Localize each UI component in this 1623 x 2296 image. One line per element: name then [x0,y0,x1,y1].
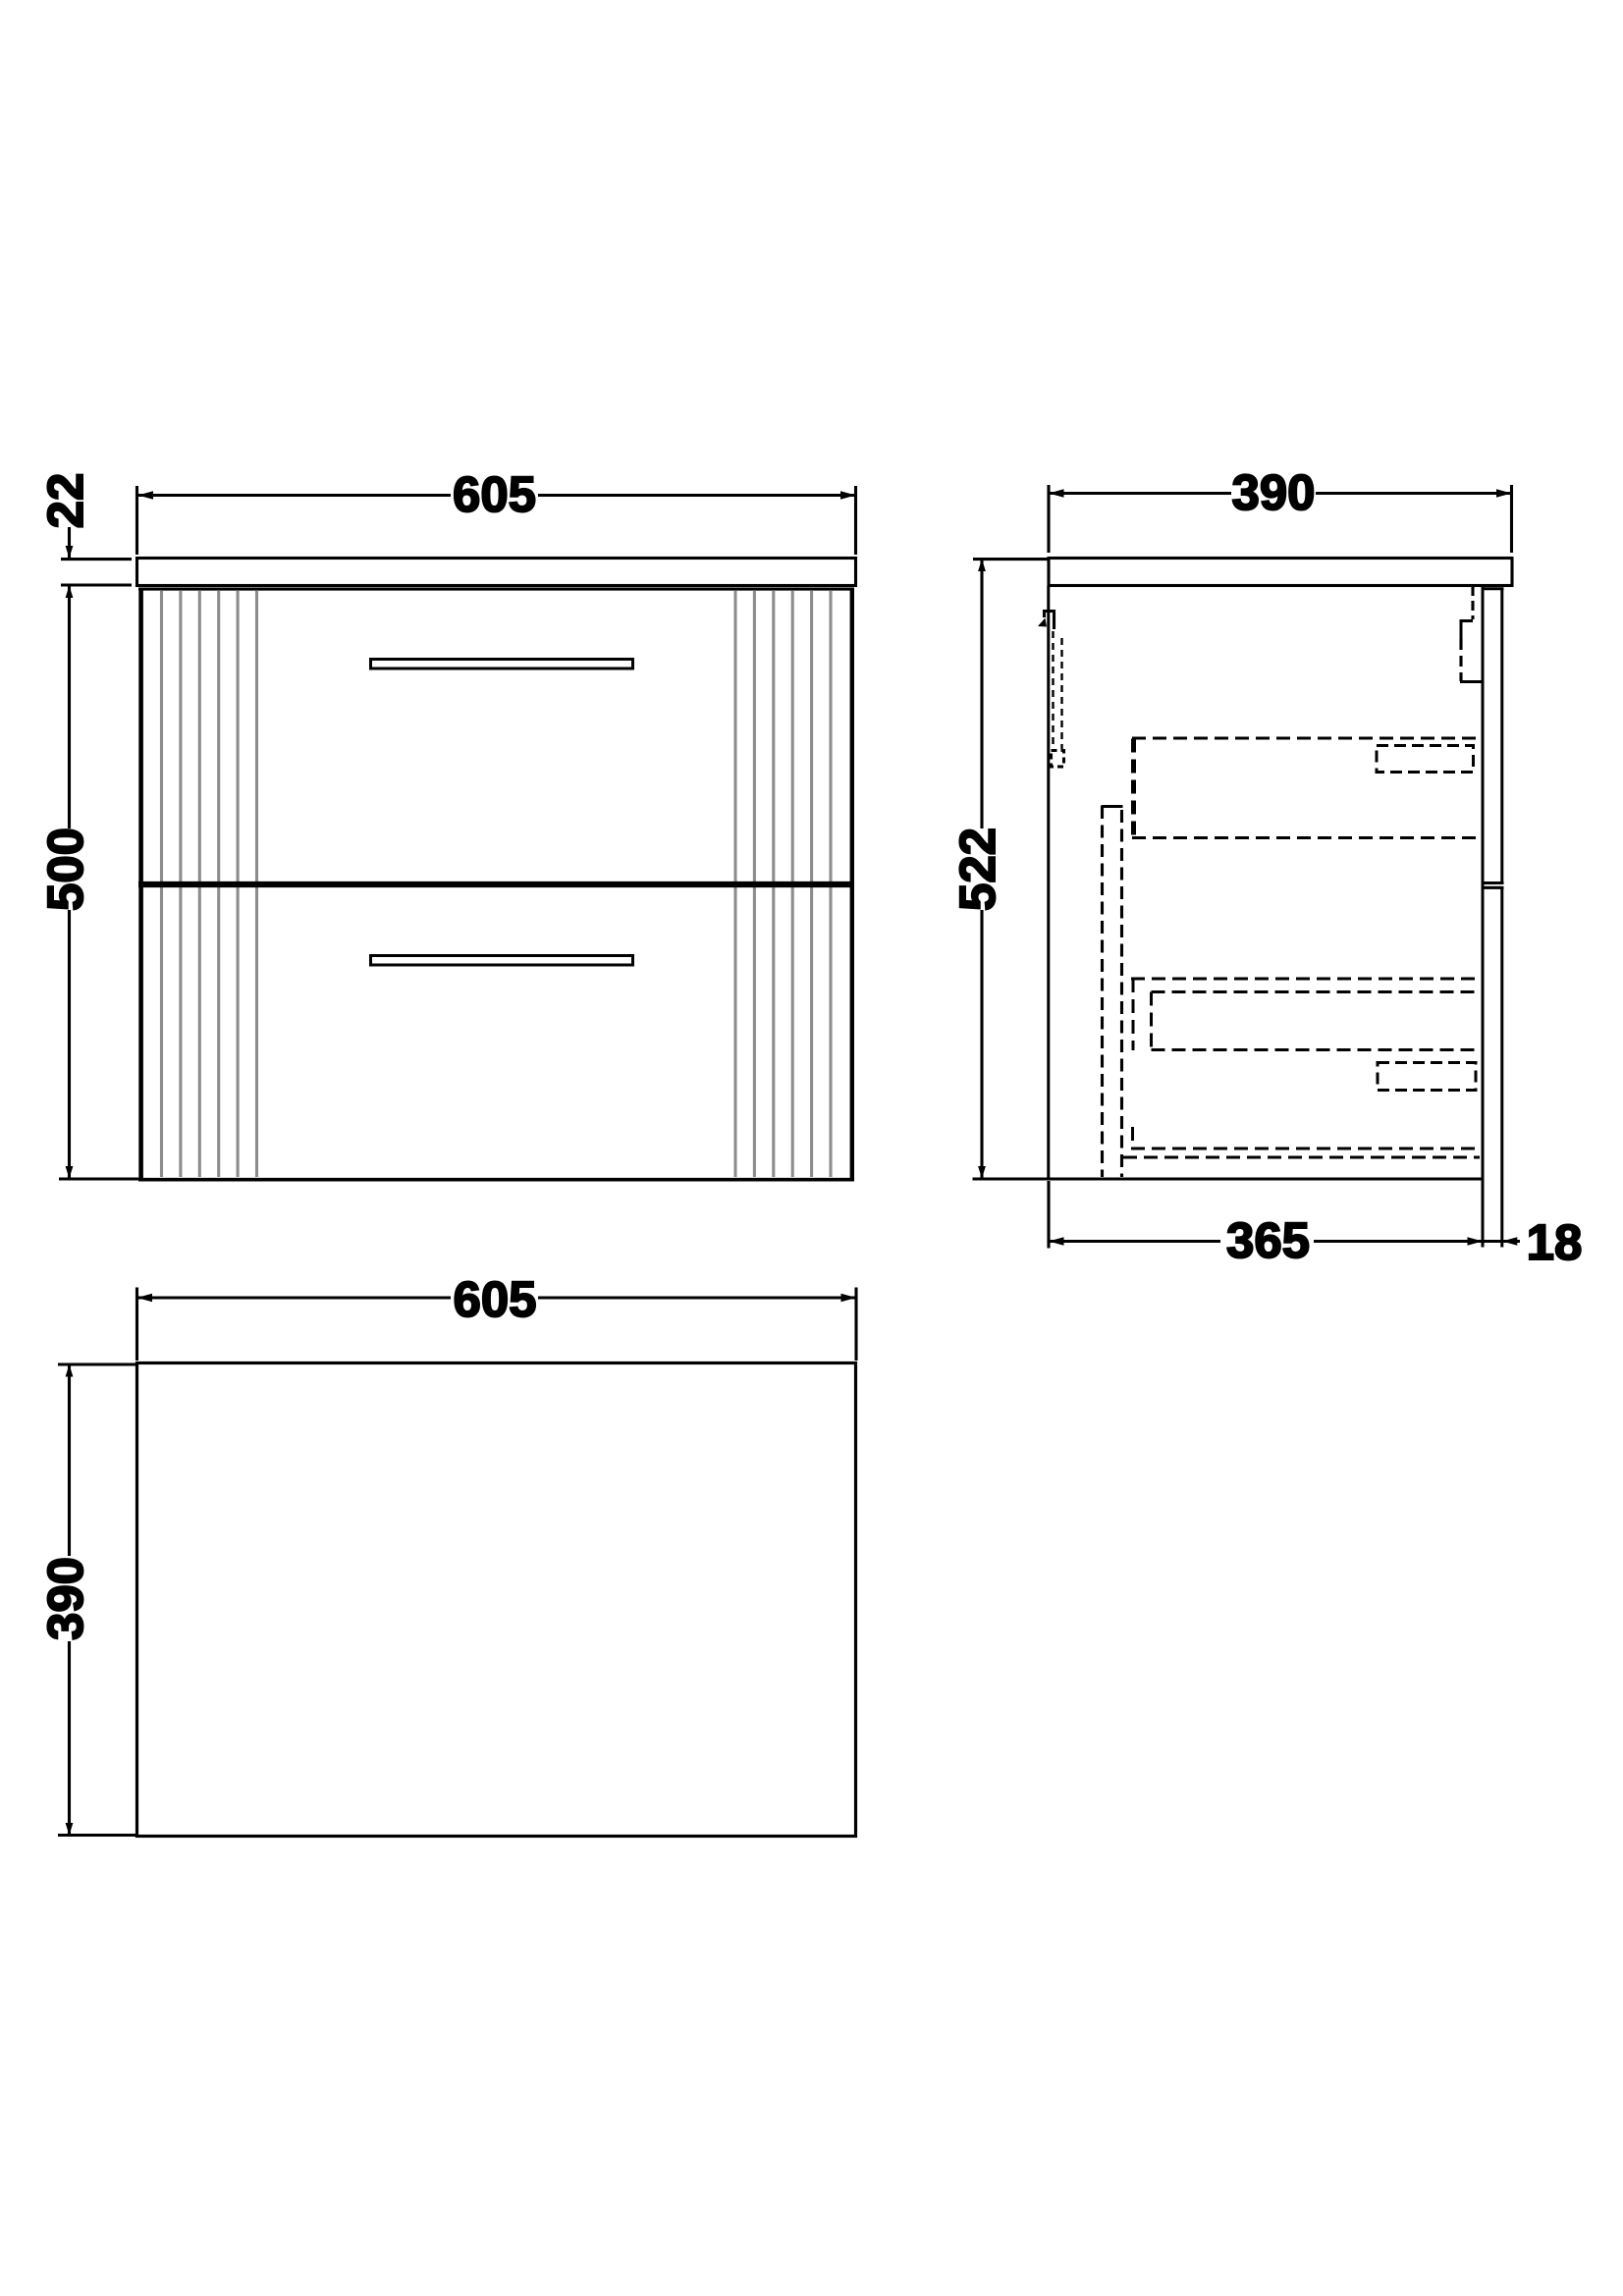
svg-text:500: 500 [37,828,93,911]
svg-text:605: 605 [453,466,536,522]
svg-text:22: 22 [37,473,93,529]
svg-text:365: 365 [1226,1212,1310,1268]
svg-text:390: 390 [37,1557,93,1640]
svg-text:390: 390 [1231,464,1315,520]
svg-text:18: 18 [1527,1214,1583,1270]
svg-text:522: 522 [949,828,1005,911]
svg-text:605: 605 [453,1271,536,1327]
